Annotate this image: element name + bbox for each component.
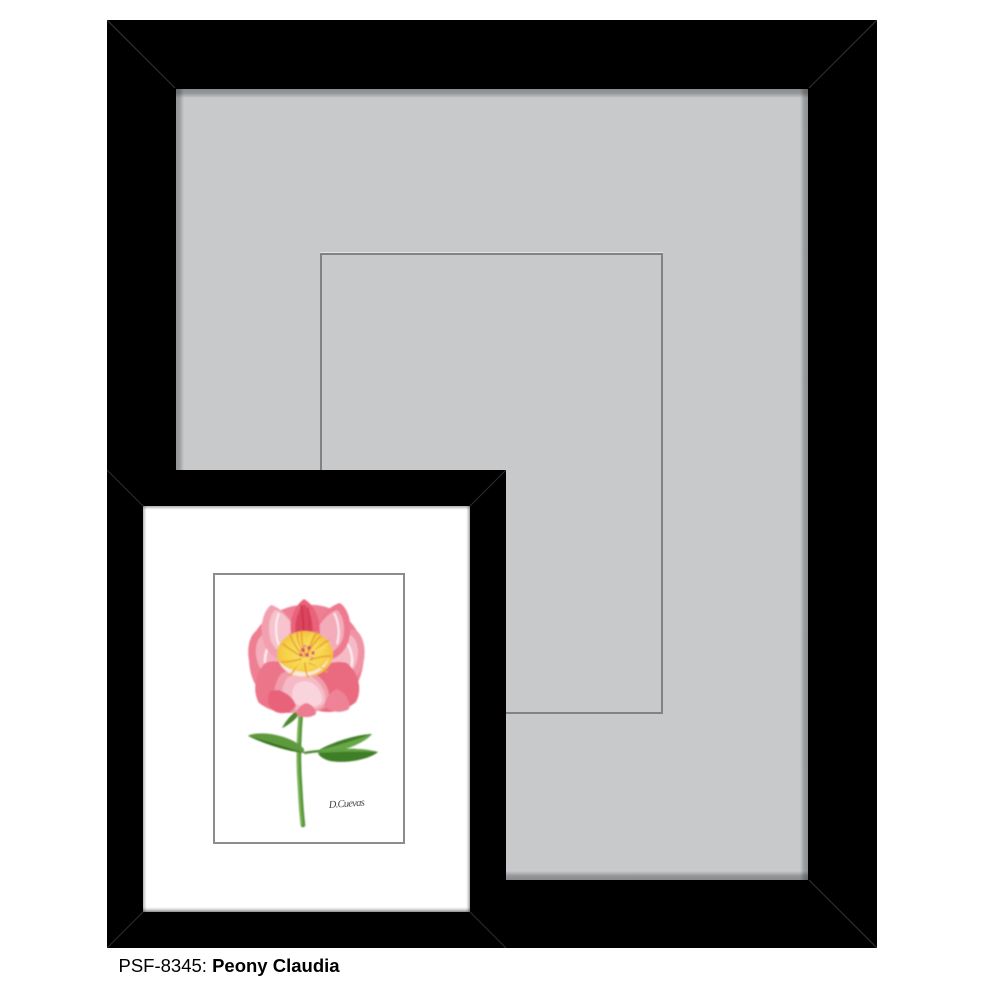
svg-text:D.Cuevas: D.Cuevas (327, 798, 365, 812)
